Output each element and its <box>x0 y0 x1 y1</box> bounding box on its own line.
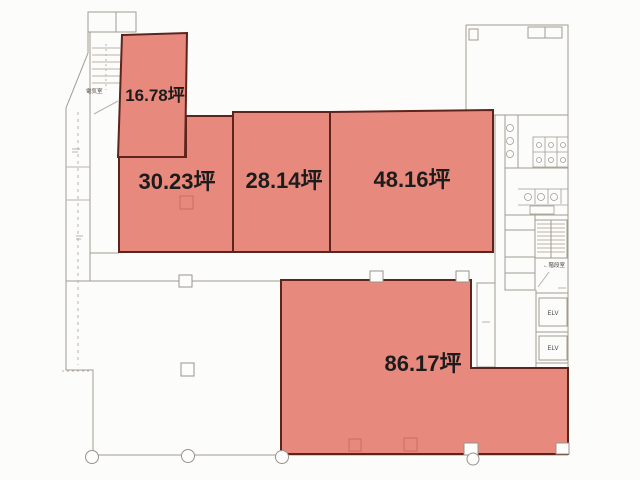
elevator-upper-label: ELV <box>548 311 559 317</box>
column-marker <box>556 443 569 454</box>
small-room-top-left-b <box>116 12 136 32</box>
round-column <box>182 450 195 463</box>
column-marker <box>181 363 194 376</box>
round-column <box>276 451 289 464</box>
small-duct-box <box>469 29 478 40</box>
round-column <box>86 451 99 464</box>
stair-room-label: ←階段室 <box>543 261 566 269</box>
elevator-shafts <box>536 290 568 368</box>
column-marker <box>370 271 383 282</box>
round-column <box>467 453 479 465</box>
floor-plan-page: 16.78坪 30.23坪 28.14坪 48.16坪 86.17坪 電気室 ←… <box>0 0 640 480</box>
urinal-fixtures <box>507 125 514 158</box>
small-room-top-left-a <box>88 12 116 32</box>
area-label-16-78: 16.78坪 <box>125 86 185 105</box>
highlighted-areas <box>118 33 568 454</box>
floor-plan-drawing: 16.78坪 30.23坪 28.14坪 48.16坪 86.17坪 電気室 ←… <box>0 0 640 480</box>
service-rooms-column <box>505 215 535 290</box>
elevator-lower-label: ELV <box>548 346 559 352</box>
column-marker <box>456 271 469 282</box>
column-marker <box>179 275 192 287</box>
toilet-stall-grid <box>533 137 568 167</box>
area-label-30-23: 30.23坪 <box>138 169 215 194</box>
toilet-row-2 <box>518 189 568 214</box>
stairwell <box>535 220 567 293</box>
area-label-86-17: 86.17坪 <box>384 351 461 376</box>
area-label-28-14: 28.14坪 <box>245 168 322 193</box>
area-label-48-16: 48.16坪 <box>373 167 450 192</box>
electrical-room-label: 電気室 <box>86 87 103 95</box>
pipe-shaft-room <box>477 283 495 367</box>
stair-diagonal <box>94 101 118 114</box>
